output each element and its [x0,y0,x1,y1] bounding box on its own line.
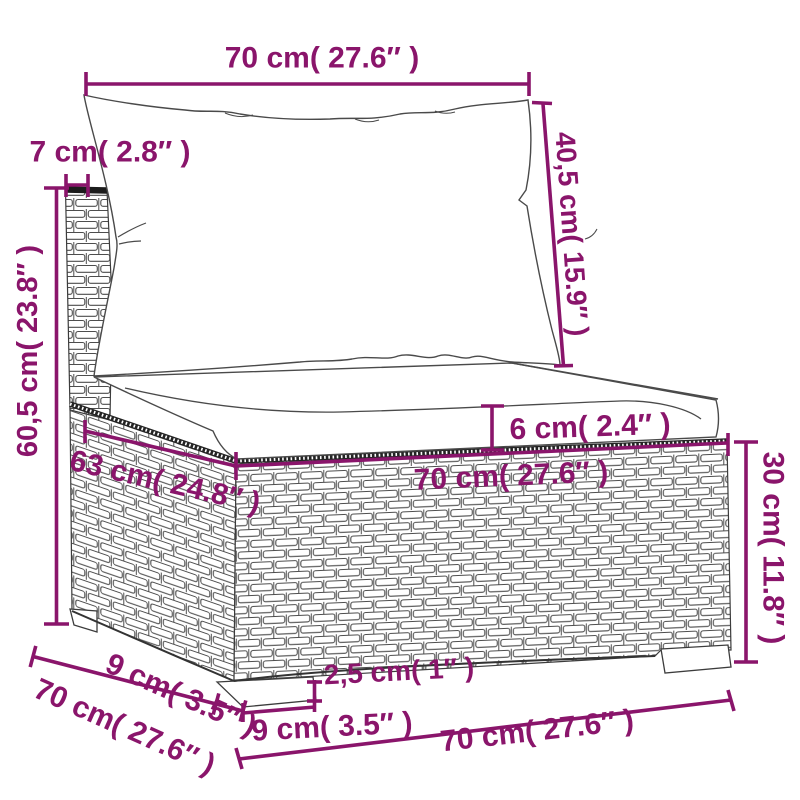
svg-text:70 cm( 27.6″ ): 70 cm( 27.6″ ) [225,42,419,75]
svg-text:60,5 cm( 23.8″ ): 60,5 cm( 23.8″ ) [12,245,44,457]
svg-text:6 cm( 2.4″ ): 6 cm( 2.4″ ) [509,408,671,447]
svg-text:30 cm( 11.8″ ): 30 cm( 11.8″ ) [757,452,790,645]
svg-text:7 cm( 2.8″ ): 7 cm( 2.8″ ) [29,136,190,169]
